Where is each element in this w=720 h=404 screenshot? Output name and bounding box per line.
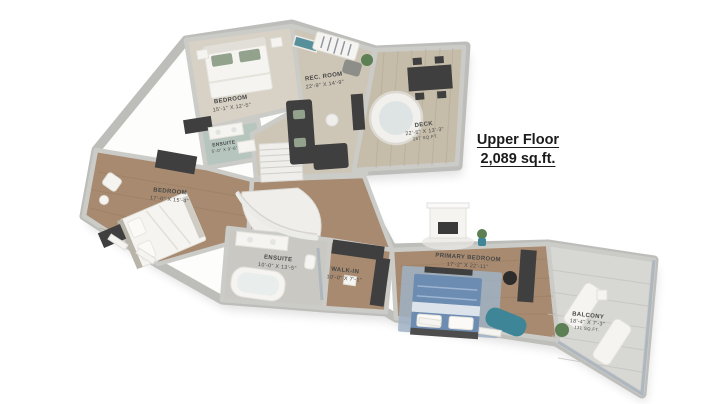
coffee-table: [326, 114, 338, 126]
bed: [203, 37, 272, 98]
side-table: [100, 196, 109, 205]
toilet: [304, 254, 316, 269]
potted-plant: [361, 54, 373, 66]
plant-vase: [477, 229, 487, 246]
floorplan-rendering: BEDROOM 15'-1" X 12'-5" REC. ROOM 22'-9"…: [0, 0, 720, 404]
desk-chair: [503, 271, 517, 285]
floor-title: Upper Floor: [459, 131, 577, 150]
potted-plant: [555, 323, 569, 337]
nightstand: [270, 37, 282, 48]
floorplan-canvas: BEDROOM 15'-1" X 12'-5" REC. ROOM 22'-9"…: [0, 0, 720, 404]
side-table: [597, 290, 607, 300]
fireplace: [422, 203, 474, 250]
nightstand: [196, 49, 208, 60]
tv-console: [351, 94, 365, 131]
floor-area-total: 2,089 sq.ft.: [459, 150, 577, 169]
shower: [237, 140, 256, 154]
floor-title-block: Upper Floor 2,089 sq.ft.: [459, 131, 577, 169]
